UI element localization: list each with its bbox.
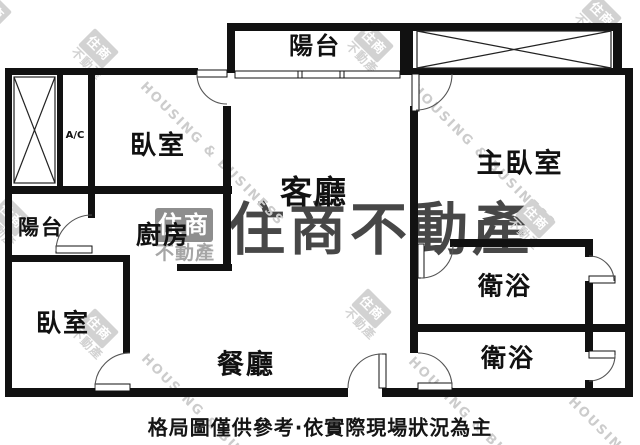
wall-canopy-right xyxy=(613,23,622,73)
wall-outer-left xyxy=(5,68,12,397)
room-label-balcony-left: 陽台 xyxy=(18,218,64,239)
room-label-ac: A/C xyxy=(66,131,85,141)
wall-living-left xyxy=(223,106,231,270)
room-label-living-room: 客廳 xyxy=(280,176,348,208)
wall-ac-right xyxy=(88,68,95,218)
wall-top-left xyxy=(5,68,198,75)
wall-balcony-top xyxy=(227,23,622,31)
door-arc-bath-lower xyxy=(418,353,452,387)
wall-bath-divider xyxy=(410,324,633,332)
room-label-bathroom-lower: 衛浴 xyxy=(481,346,535,371)
door-arc-master xyxy=(416,74,452,110)
wall-living-right xyxy=(410,106,418,353)
room-label-kitchen: 廚房 xyxy=(136,223,190,248)
door-leaf-entrance xyxy=(379,354,386,388)
room-label-balcony-top: 陽台 xyxy=(289,34,341,58)
door-arc-bath-upper xyxy=(421,246,453,278)
floor-plan-linework xyxy=(0,0,640,445)
wall-balcony-left xyxy=(227,23,235,73)
wall-outer-right xyxy=(625,68,633,397)
door-leaf-bath-upper-right xyxy=(589,276,615,283)
door-arc-bedroom-top xyxy=(197,74,227,104)
room-label-bathroom-upper: 衛浴 xyxy=(478,274,532,299)
balcony-window xyxy=(235,71,400,78)
wall-shaft-right xyxy=(57,73,63,188)
wall-bedroom2-top xyxy=(5,255,130,262)
door-leaf-bedroom-bottom xyxy=(95,384,130,391)
wall-kitchen-bottom xyxy=(177,264,232,271)
room-label-bedroom-top: 臥室 xyxy=(130,133,186,159)
room-label-dining-room: 餐廳 xyxy=(217,352,275,379)
door-leaf-bath-lower-right xyxy=(589,351,615,358)
wall-mid-left xyxy=(5,186,232,194)
wall-bath-strip xyxy=(585,332,593,352)
door-arc-entrance xyxy=(348,354,382,388)
room-label-bedroom-bottom: 臥室 xyxy=(36,311,90,336)
wall-bath-strip xyxy=(585,245,593,257)
wall-master-top xyxy=(400,68,633,75)
wall-bath-upper-top xyxy=(450,239,593,247)
door-leaf-bath-upper xyxy=(418,244,424,278)
wall-bedroom2-right xyxy=(123,255,130,353)
disclaimer-caption: 格局圖僅供參考·依實際現場狀況為主 xyxy=(148,412,493,441)
room-label-master-bedroom: 主臥室 xyxy=(477,151,564,178)
wall-outer-bottom-left xyxy=(5,388,348,397)
wall-bath-strip xyxy=(585,281,593,324)
door-leaf-balcony-kitchen xyxy=(56,246,92,253)
door-leaf-bath-lower xyxy=(418,383,452,390)
door-leaf-bedroom-top xyxy=(197,70,227,77)
door-leaf-master xyxy=(412,74,419,111)
wall-balcony-right xyxy=(400,23,413,73)
door-arc-bedroom-bottom xyxy=(95,353,130,388)
floor-plan: 住商不動產 HOUSING & BUSINESS HOUSING & BUSIN… xyxy=(0,0,640,445)
door-arc-bath-lower-right xyxy=(589,355,615,381)
